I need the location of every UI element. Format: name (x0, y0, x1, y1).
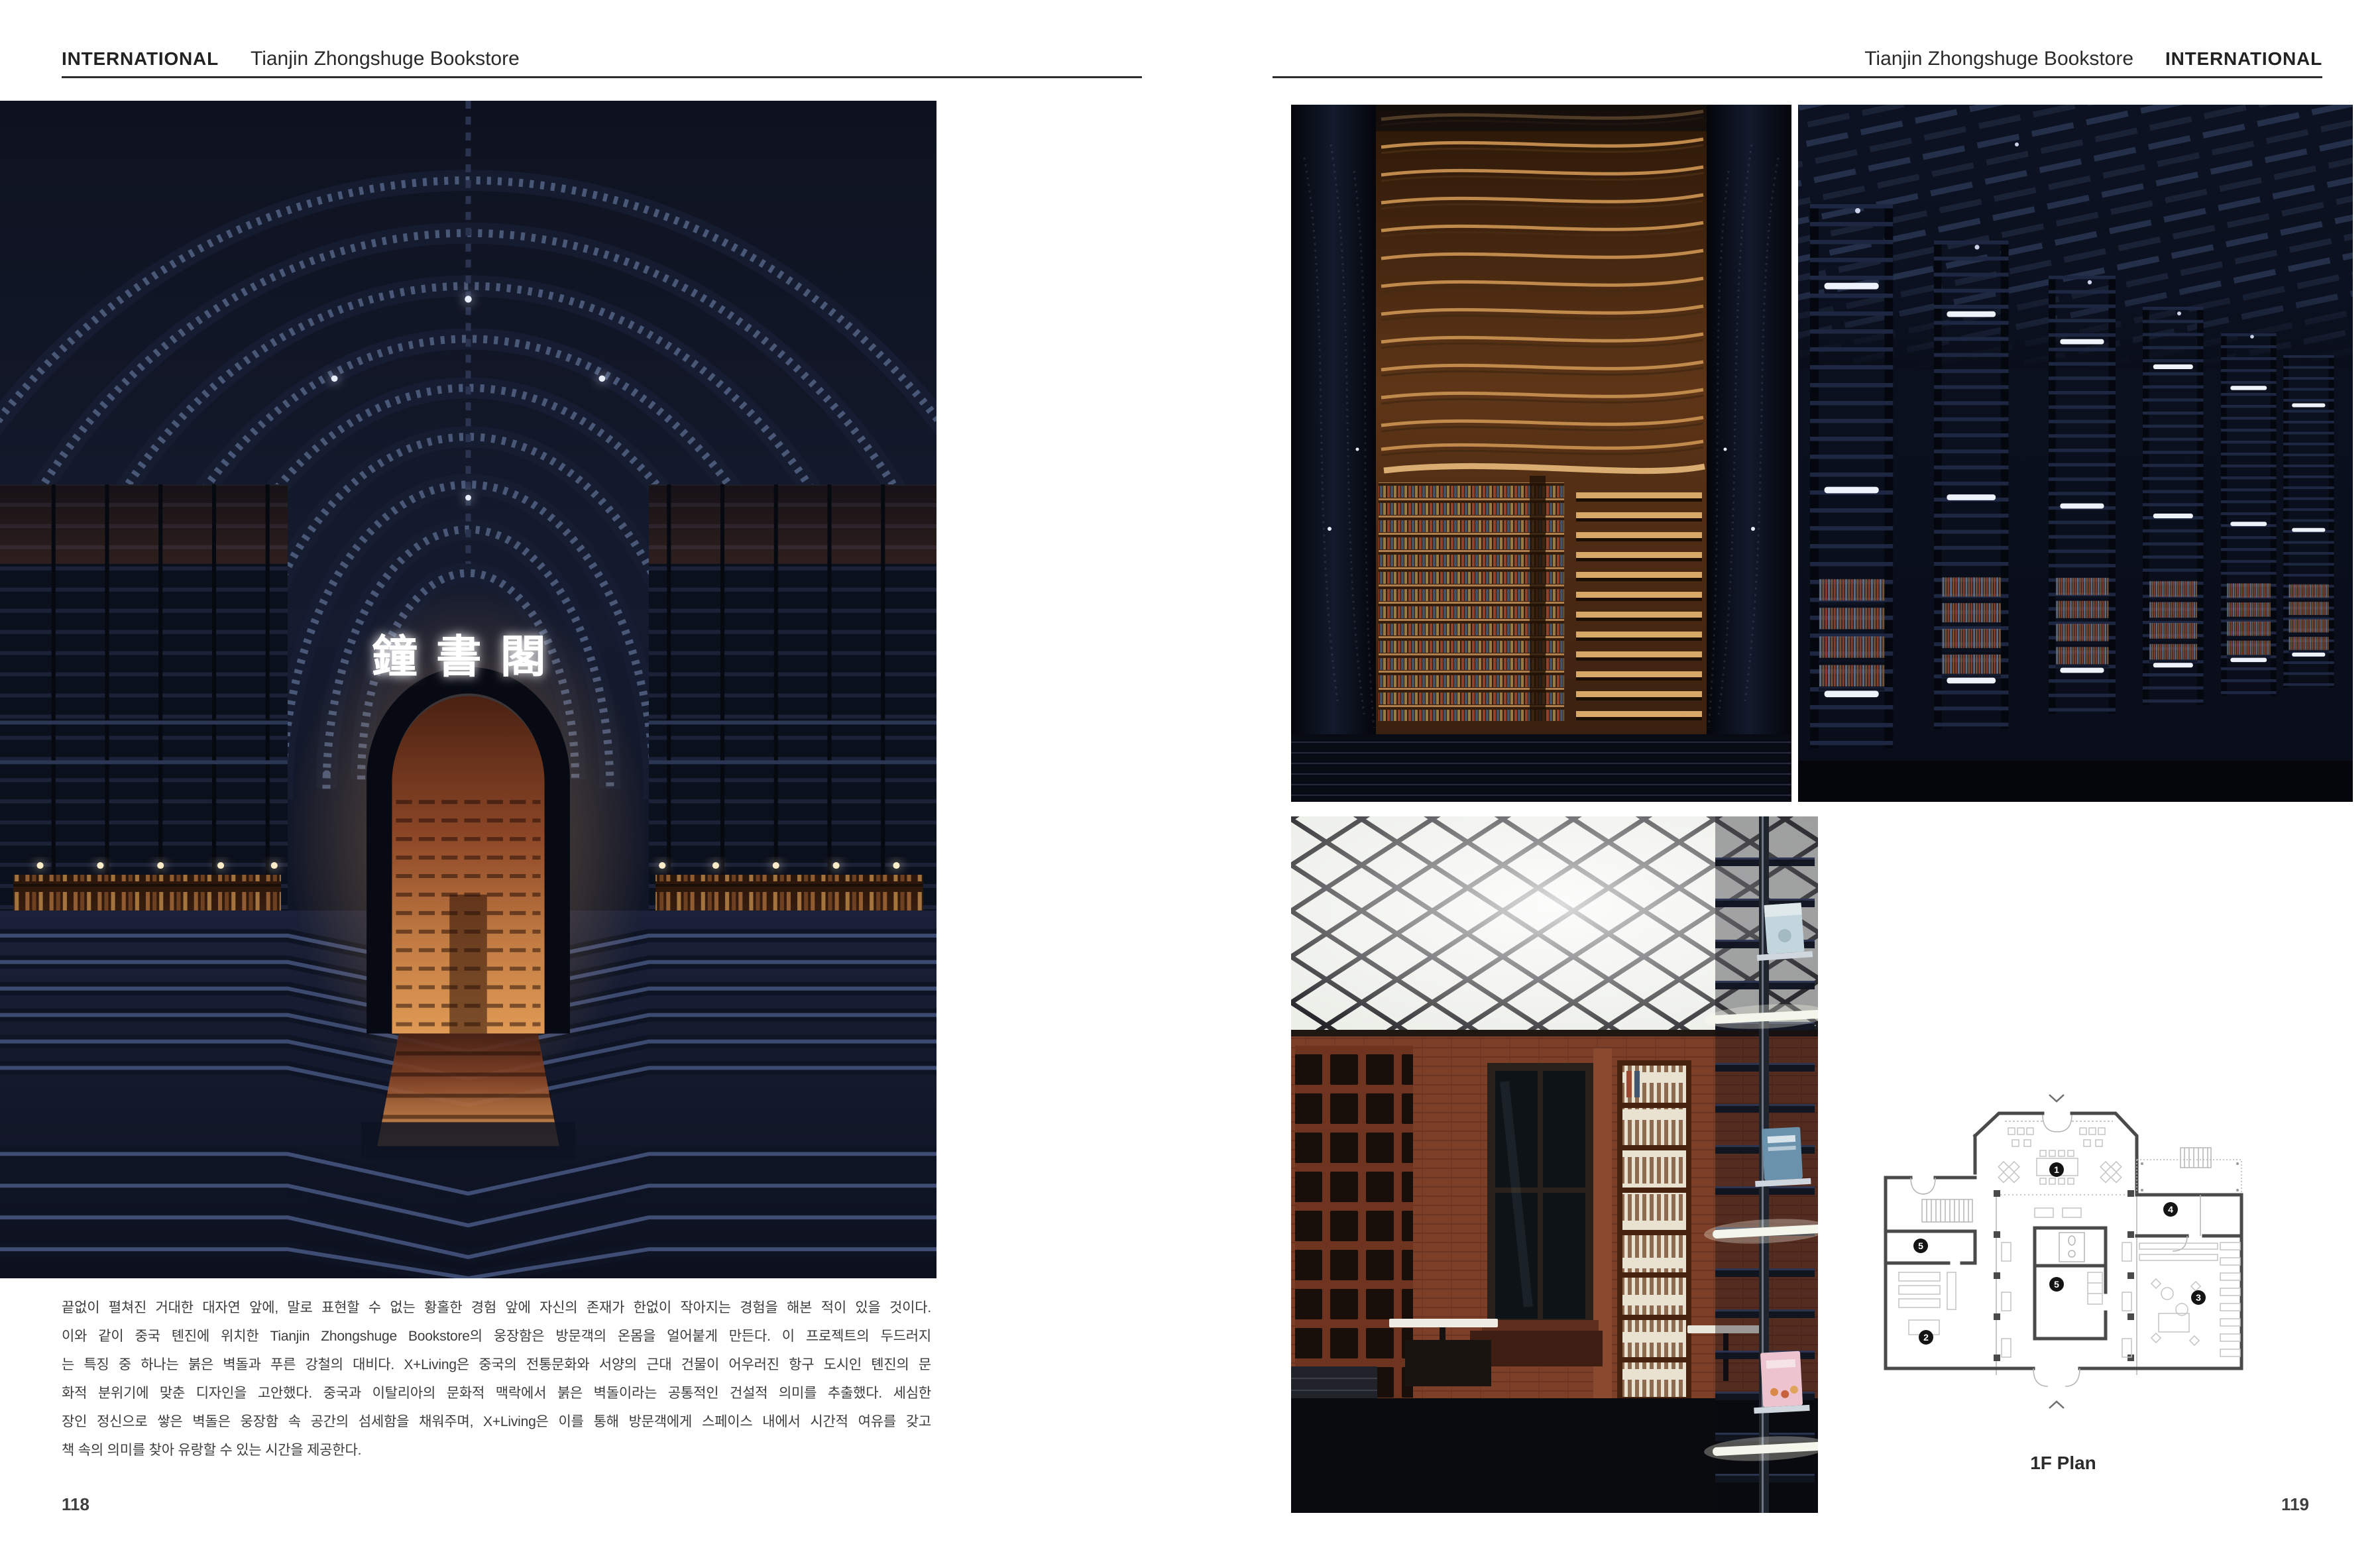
page-number-left: 118 (62, 1494, 89, 1515)
plan-marker-3: 3 (2196, 1292, 2201, 1303)
plan-marker-5-core: 5 (2054, 1279, 2059, 1290)
photo-shelf-aisle (1798, 105, 2353, 802)
reading-room-illustration (1291, 816, 1818, 1513)
plan-bottom-entrance (1886, 1368, 2241, 1408)
photo-reading-room (1291, 816, 1818, 1513)
header-rule-left (62, 76, 1142, 78)
header-rule-right (1273, 76, 2322, 78)
built-in-bookshelf (1617, 1060, 1691, 1402)
svg-text:鐘書閣: 鐘書閣 (372, 632, 565, 683)
glossy-panel-right (1707, 105, 1791, 802)
right-page-header: Tianjin Zhongshuge Bookstore INTERNATION… (1273, 48, 2322, 70)
plan-marker-2: 2 (1923, 1332, 1929, 1343)
floor-plan-caption: 1F Plan (1997, 1453, 2129, 1474)
entrance-arrow-top (2049, 1095, 2064, 1101)
magazine-spread: INTERNATIONAL Tianjin Zhongshuge Booksto… (0, 0, 2380, 1550)
article-title: Tianjin Zhongshuge Bookstore (251, 48, 520, 70)
plan-marker-1: 1 (2054, 1164, 2059, 1175)
glossy-panel-left (1291, 105, 1376, 802)
plan-marker-4: 4 (2168, 1204, 2173, 1215)
body-line: 는 특징 중 하나는 붉은 벽돌과 푸른 강철의 대비다. X+Living은 … (62, 1351, 931, 1379)
section-label: INTERNATIONAL (2165, 48, 2322, 70)
main-hall-illustration: 鐘書閣 鐘書閣 (0, 101, 936, 1278)
plan-right-wing: 4 3 (2137, 1148, 2241, 1368)
plan-left-wing: 5 2 (1886, 1178, 1975, 1368)
plan-central-hall (1994, 1190, 2137, 1375)
lattice-niches (1295, 1046, 1413, 1398)
plan-core: 5 (2035, 1228, 2106, 1339)
plan-marker-5-left: 5 (1918, 1241, 1923, 1251)
dark-steps (1291, 734, 1791, 802)
article-title: Tianjin Zhongshuge Bookstore (1864, 48, 2133, 70)
display-tower (1703, 816, 1818, 1513)
entrance-arrow-bottom (2049, 1402, 2064, 1408)
photo-wood-atrium (1291, 105, 1791, 802)
body-line: 책 속의 의미를 찾아 유랑할 수 있는 시간을 제공한다. (62, 1436, 931, 1465)
left-page-header: INTERNATIONAL Tianjin Zhongshuge Booksto… (62, 48, 520, 70)
section-label: INTERNATIONAL (62, 48, 219, 70)
page-number-right: 119 (2243, 1494, 2309, 1515)
neon-sign: 鐘書閣 鐘書閣 (372, 632, 565, 683)
body-line: 장인 정신으로 쌓은 벽돌은 웅장함 속 공간의 섬세함을 채워주며, X+Li… (62, 1408, 931, 1436)
body-line: 끝없이 펼쳐진 거대한 대자연 앞에, 말로 표현할 수 없는 황홀한 경험 앞… (62, 1294, 931, 1322)
body-line: 화적 분위기에 맞춘 디자인을 고안했다. 중국과 이탈리아의 문화적 맥락에서… (62, 1379, 931, 1408)
wood-atrium-illustration (1291, 105, 1791, 802)
article-body: 끝없이 펼쳐진 거대한 대자연 앞에, 말로 표현할 수 없는 황홀한 경험 앞… (62, 1294, 931, 1465)
body-line: 이와 같이 중국 톈진에 위치한 Tianjin Zhongshuge Book… (62, 1322, 931, 1351)
shelf-aisle-illustration (1798, 105, 2353, 802)
floor-plan: 1 (1869, 1074, 2333, 1471)
photo-main-hall: 鐘書閣 鐘書閣 (0, 101, 936, 1278)
plan-hall-top: 1 (1975, 1113, 2137, 1193)
